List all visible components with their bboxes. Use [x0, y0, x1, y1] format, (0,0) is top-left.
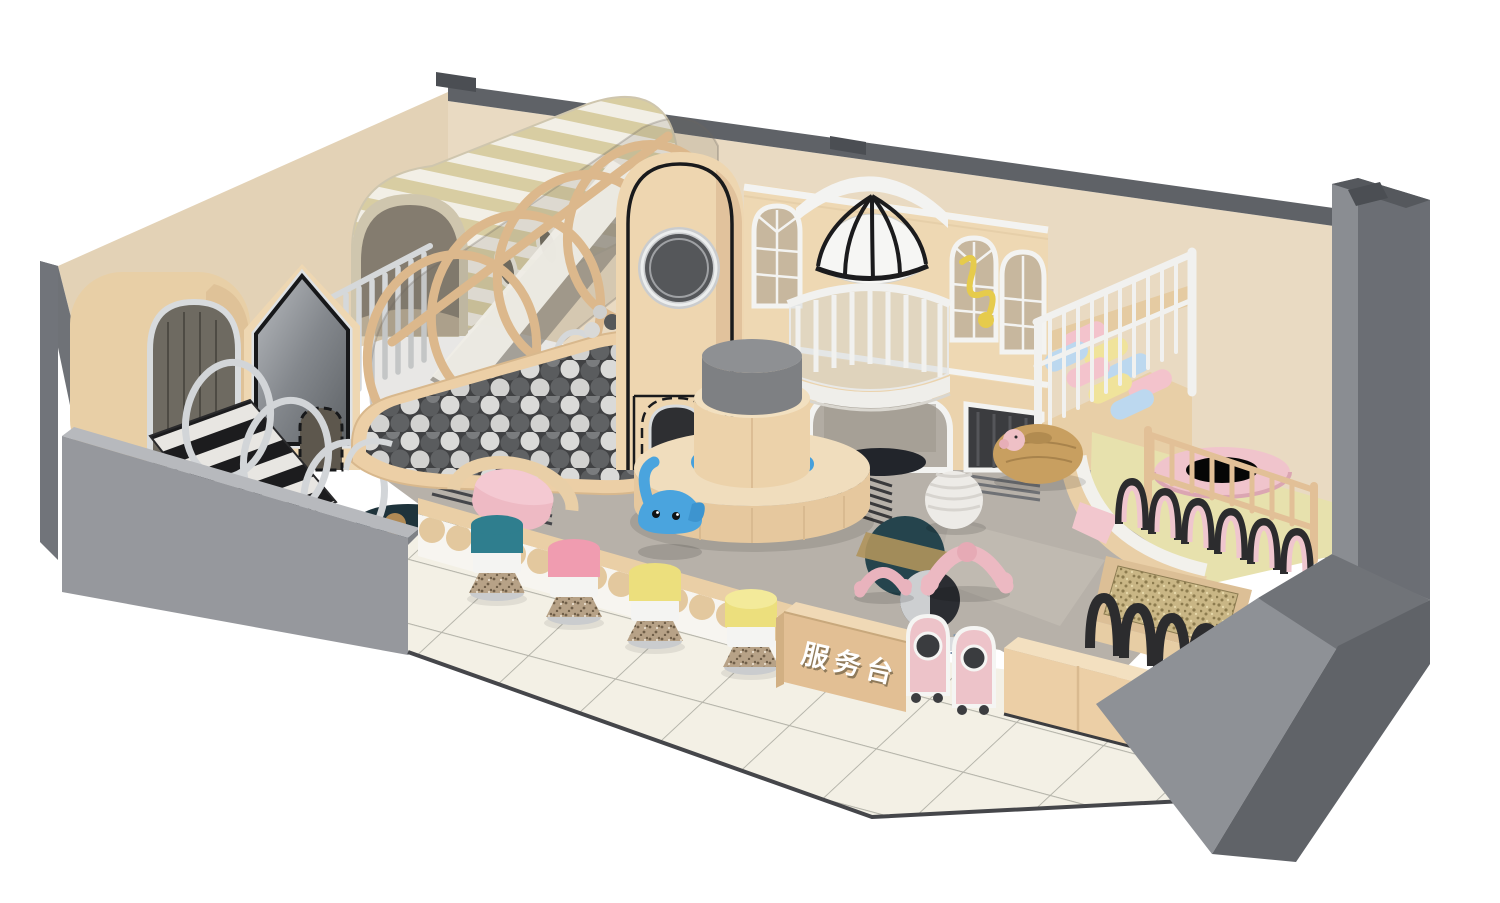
porthole-glass [645, 234, 713, 302]
stool-yellow [625, 563, 685, 654]
left-wall-slab [40, 261, 58, 560]
desk-side [776, 612, 784, 688]
yellow-ball [978, 312, 994, 328]
gate-hole [915, 633, 941, 659]
arch-window [952, 238, 996, 340]
gate-hole [962, 646, 986, 670]
arch-window [754, 206, 800, 306]
table-gray-top [702, 339, 802, 373]
stool-teal [467, 515, 527, 606]
right-pillar [1332, 178, 1430, 600]
playground-render: 服务台 服务台 [0, 0, 1500, 903]
elephant-shadow [638, 544, 702, 560]
stool-yellow [721, 589, 781, 680]
stool-pink [544, 539, 604, 630]
